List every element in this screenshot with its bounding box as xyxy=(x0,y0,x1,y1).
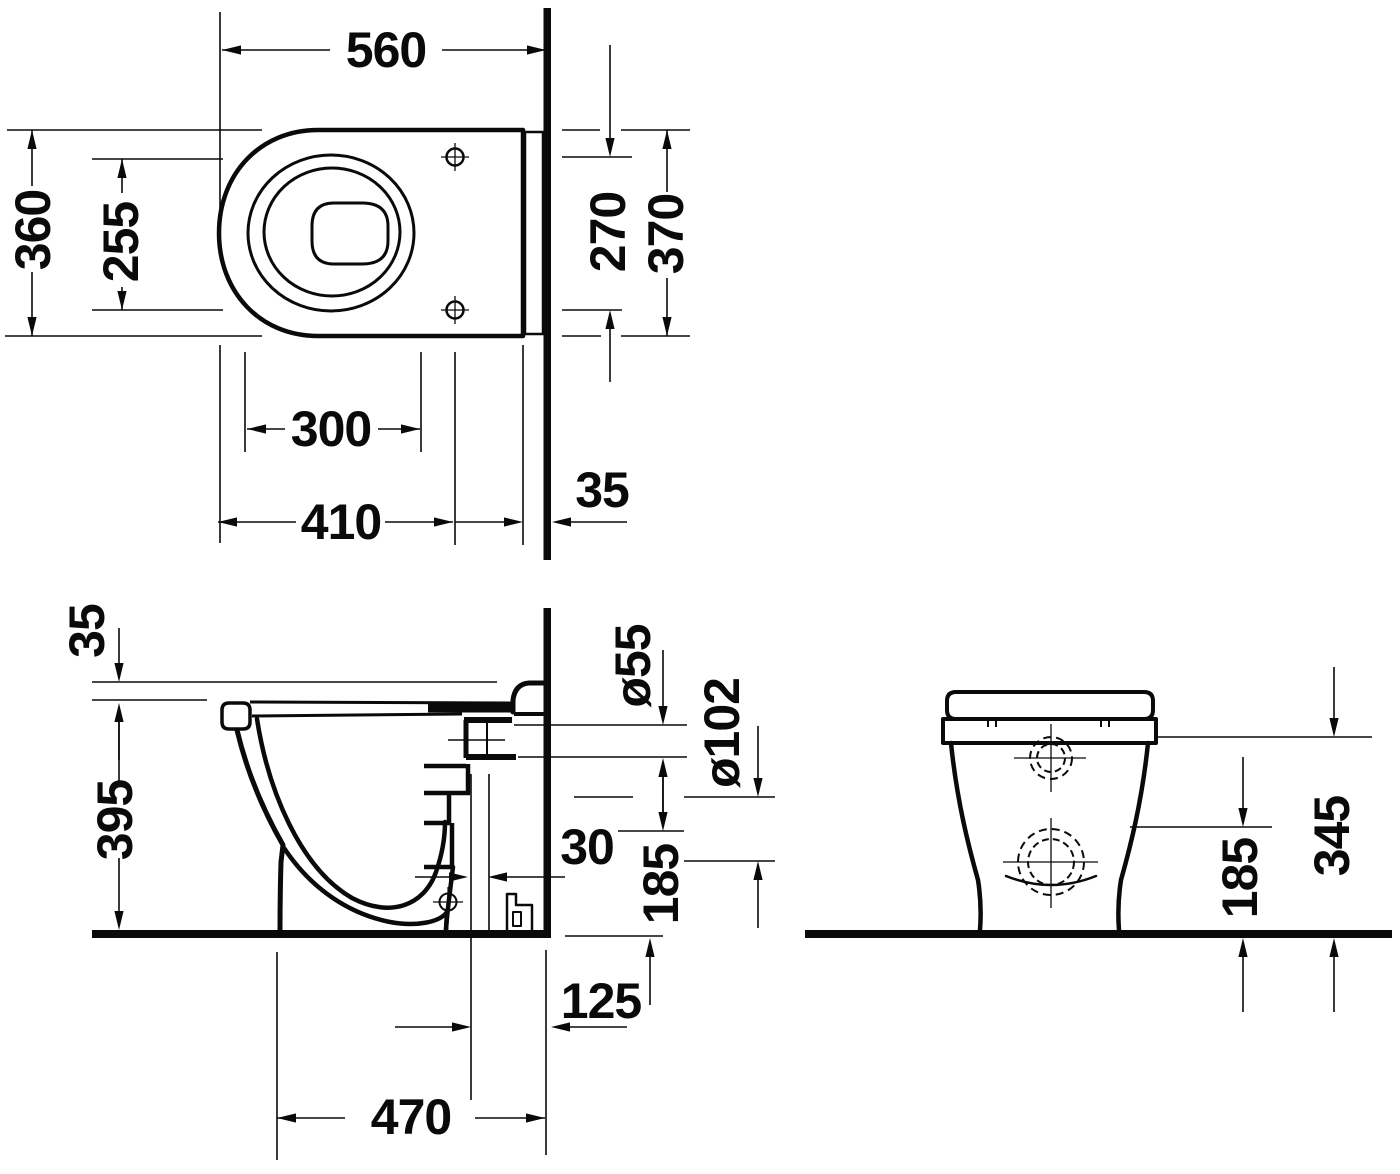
dim-label-hole-distance-410: 410 xyxy=(301,494,381,550)
dimension-labels: 560 360 255 270 370 300 410 35 35 395 ø5… xyxy=(5,22,1360,1145)
dim-label-outlet-offset-30: 30 xyxy=(560,819,614,875)
dim-label-seat-step-35: 35 xyxy=(59,604,115,658)
dim-label-outlet-center-height-185: 185 xyxy=(633,844,689,925)
dim-label-rear-width-370: 370 xyxy=(638,194,694,274)
dim-label-seat-opening-width-255: 255 xyxy=(93,202,149,283)
technical-drawing-canvas: 560 360 255 270 370 300 410 35 35 395 ø5… xyxy=(0,0,1400,1174)
dim-label-outlet-diameter-55: ø55 xyxy=(605,624,661,707)
dim-label-fixing-distance-470: 470 xyxy=(371,1089,451,1145)
technical-drawing-page: 560 360 255 270 370 300 410 35 35 395 ø5… xyxy=(0,0,1400,1174)
drawing-geometry xyxy=(5,8,1392,1160)
dim-label-overall-width-360: 360 xyxy=(5,190,61,270)
dim-label-opening-depth-300: 300 xyxy=(291,401,371,457)
dim-label-body-top-height-345: 345 xyxy=(1304,796,1360,877)
dim-label-floor-outlet-diameter-102: ø102 xyxy=(694,678,750,788)
dim-label-hole-spacing-270: 270 xyxy=(580,192,636,272)
dim-label-wall-gap-35: 35 xyxy=(575,462,629,518)
dim-label-overall-depth-560: 560 xyxy=(346,22,426,78)
dim-label-floor-outlet-wall-distance-125: 125 xyxy=(561,973,642,1029)
dim-label-rear-outlet-center-height-185: 185 xyxy=(1212,838,1268,919)
dim-label-rim-height-395: 395 xyxy=(87,780,143,861)
